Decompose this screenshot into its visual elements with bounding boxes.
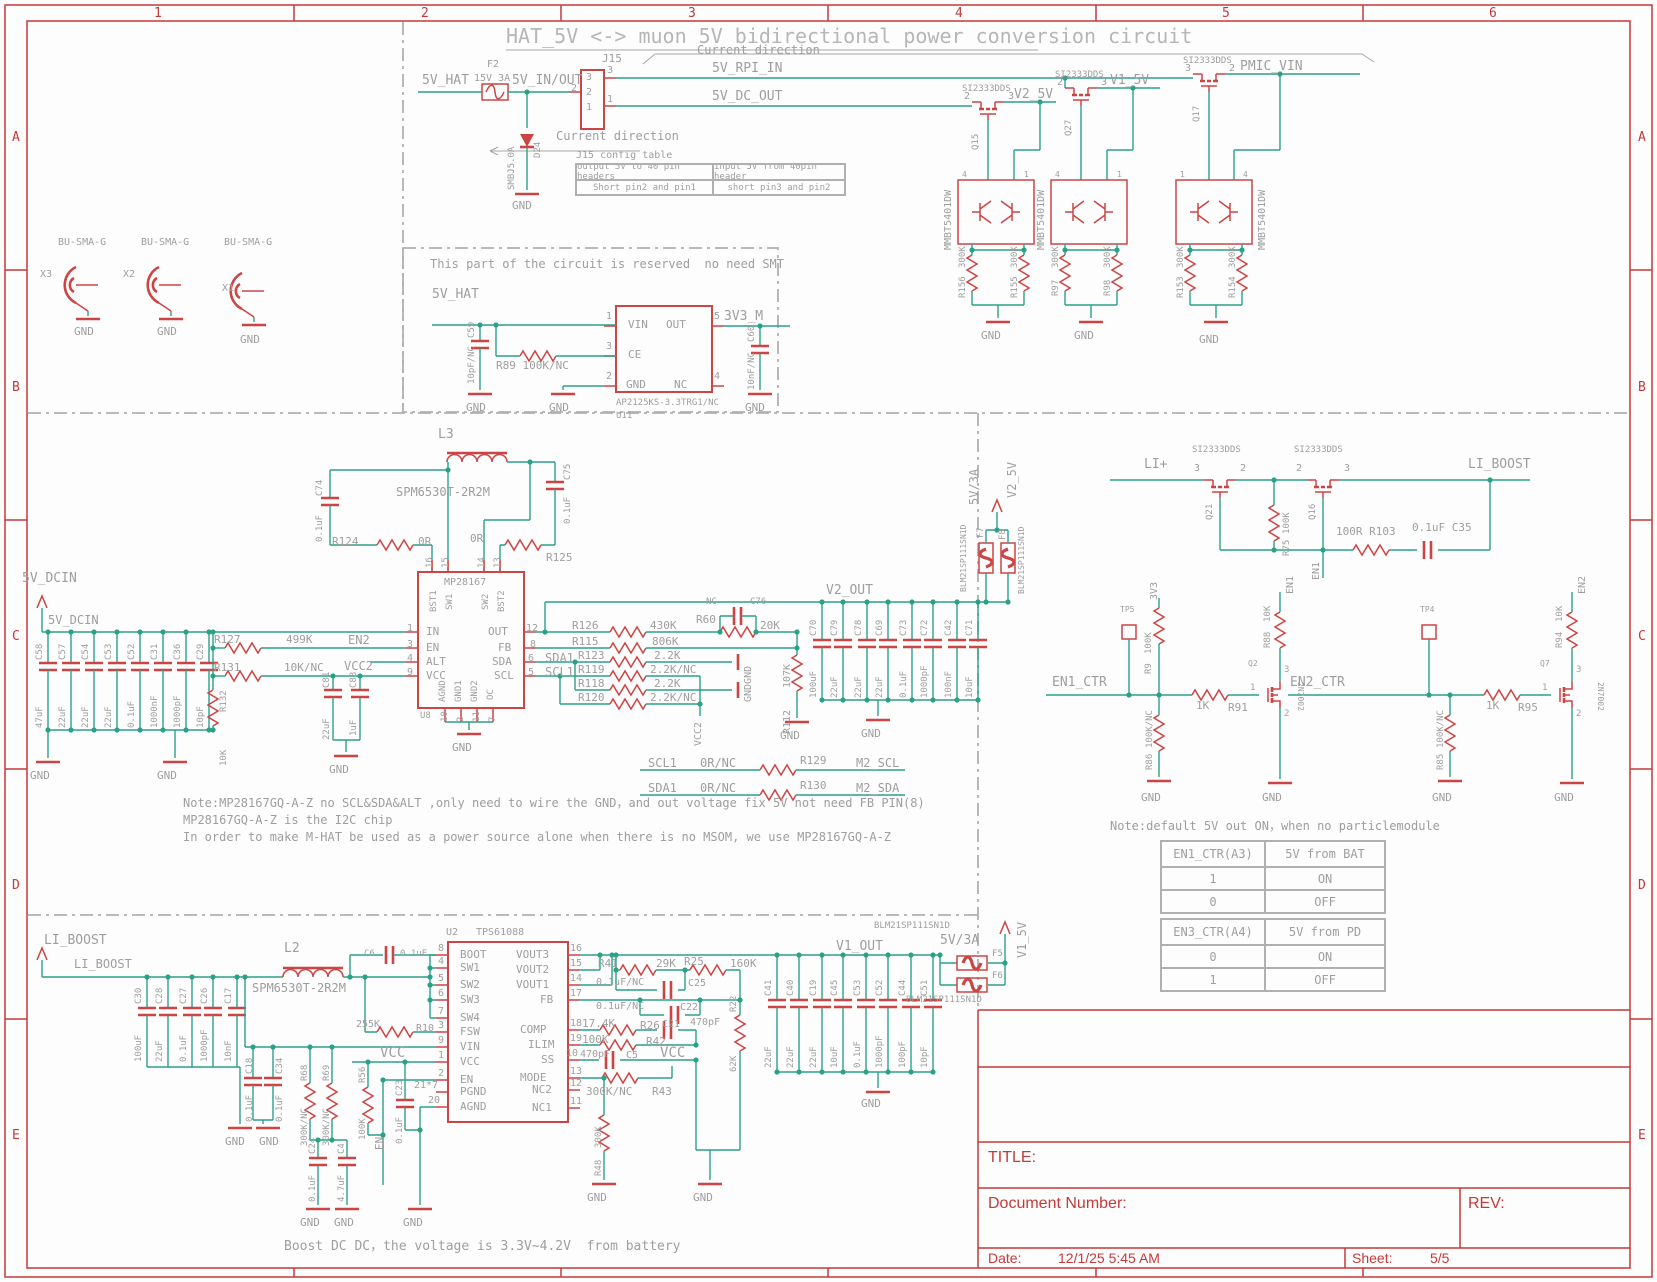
sch-label: 4 [962, 171, 967, 179]
sch-label: C40 [787, 980, 796, 996]
sch-label: C69 [876, 620, 885, 636]
sch-label: C24 [309, 1138, 318, 1154]
pnp [1094, 201, 1113, 223]
sch-label: 100pF [899, 1041, 908, 1068]
sch-label: 10uF [966, 676, 975, 698]
sch-label: 300K/NC [323, 1108, 332, 1146]
sch-label: 22uF [323, 718, 332, 740]
sch-label: R60 [696, 614, 716, 625]
wire [638, 1066, 672, 1078]
sch-label: EN2 [348, 634, 370, 646]
fuse [486, 85, 504, 99]
sch-label: F7 [977, 527, 986, 538]
sch-label: R129 [800, 755, 827, 766]
sch-label: 2 [1576, 710, 1581, 719]
pfet [980, 114, 996, 120]
sch-label: 0.1uF [128, 701, 137, 728]
sch-label: 1 [1180, 171, 1185, 179]
sch-label: R10 [416, 1024, 434, 1034]
sch-label: SI2333DDS [1192, 446, 1241, 455]
sch-label: VCC2 [344, 660, 373, 672]
sch-label: MMBT5401DW [1037, 190, 1047, 250]
wire [445, 722, 493, 730]
sch-label: V1_OUT [836, 940, 883, 953]
sch-label: 0R [470, 533, 483, 544]
sch-label: MP28167 [444, 578, 486, 588]
sch-label: SDA [492, 656, 512, 667]
sch-label: GND [74, 326, 94, 337]
sch-label: R155 [1011, 276, 1020, 298]
sch-label: GND [587, 1192, 607, 1203]
resistor [620, 965, 656, 975]
sch-label: GND [1262, 792, 1282, 803]
table-cell: 5V from PD [1265, 919, 1385, 945]
sch-label: C52 [128, 644, 137, 660]
sch-label: C28 [156, 988, 165, 1004]
sch-label: BU-SMA-G [141, 238, 189, 248]
sch-label: SW3 [460, 994, 480, 1005]
sch-label: GND1 [455, 680, 464, 702]
sch-label: Q21 [1206, 504, 1215, 520]
sch-label: 2 [1296, 464, 1302, 474]
frame-row-A: A [12, 131, 20, 144]
sch-label: BLM21SP111SN1D [960, 525, 968, 592]
pnp [972, 201, 991, 223]
sch-label: SDA1 [545, 652, 574, 664]
sch-label: 4 [1055, 171, 1060, 179]
pfet [1315, 492, 1331, 498]
sch-label: VIN [628, 319, 648, 330]
j15-connector [581, 70, 604, 129]
sch-label: 1 [586, 103, 592, 113]
sch-label: R68 [301, 1065, 310, 1081]
titleblock-sheet-value: 5/5 [1430, 1251, 1449, 1265]
sch-label: 3 [1185, 64, 1191, 74]
sch-label: C30 [135, 988, 144, 1004]
sch-label: M2_SCL [856, 757, 899, 769]
sch-label: 300K [1229, 246, 1238, 268]
sch-label: GND [240, 334, 260, 345]
sch-label: NC2 [532, 1084, 552, 1095]
table-cell: EN3_CTR(A4) [1161, 919, 1265, 945]
en3-ctr-table: EN3_CTR(A4)5V from PD0ON1OFF [1160, 918, 1386, 992]
resistor [602, 1073, 638, 1083]
sch-label: SDA1 [648, 782, 677, 794]
sch-label: C25 [688, 979, 706, 989]
junction-dot [242, 974, 247, 979]
wire [563, 386, 604, 390]
sch-label: SMBJ5.0A [508, 147, 517, 190]
sch-label: 4 [438, 957, 444, 967]
sch-label: 255K [356, 1020, 380, 1030]
sch-label: 0R/NC [700, 782, 736, 794]
sch-label: 2 [457, 717, 466, 722]
wire [696, 1060, 710, 1180]
table-cell: ON [1265, 945, 1385, 968]
sch-label: V2_OUT [826, 584, 873, 597]
sch-label: 1K [1196, 700, 1209, 711]
table-cell: input 5V from 40pin header [713, 164, 845, 180]
sch-label: GND [403, 1217, 423, 1228]
sch-label: 100K [1145, 632, 1154, 654]
sch-label: R98 [1104, 280, 1113, 296]
sch-label: 5 [714, 312, 720, 322]
sch-label: SCL1 [648, 757, 677, 769]
sch-label: 300K/NC [586, 1086, 632, 1097]
sch-label: C52 [876, 980, 885, 996]
sch-label: 22uF [105, 706, 114, 728]
sch-label: 0.1uF [246, 1095, 255, 1122]
sch-label: OC [487, 689, 496, 700]
frame-line [27, 21, 1630, 1268]
sch-label: R41 [598, 958, 618, 969]
sch-label: 100K [582, 1034, 609, 1045]
junction-dot [717, 629, 722, 634]
sch-label: 100uF [135, 1035, 144, 1062]
sch-label: 1 [607, 95, 613, 105]
sch-label: SW2 [460, 979, 480, 990]
junction-dot [1114, 247, 1119, 252]
sch-label: BST1 [430, 590, 439, 612]
sch-label: NC [674, 379, 687, 390]
wire [420, 1107, 436, 1205]
sch-label: C75 [564, 464, 573, 480]
sch-label: VCC2 [694, 722, 704, 746]
inductor [447, 455, 507, 462]
sch-label: 2 [1229, 64, 1235, 74]
sch-label: 3V3 [1150, 582, 1160, 600]
sch-label: 470pF [690, 1018, 720, 1028]
table-cell: 0 [1161, 945, 1265, 968]
sch-label: 62K [730, 1056, 739, 1072]
sch-label: 10uF [831, 1046, 840, 1068]
table-cell: 1 [1161, 968, 1265, 991]
sch-label: NC [706, 598, 717, 607]
power-arrow [1000, 922, 1010, 934]
frame-col-5: 5 [1222, 7, 1230, 20]
power-arrow [992, 500, 1002, 512]
sch-label: 3 [407, 640, 413, 650]
frame-row-E: E [1638, 1129, 1646, 1142]
sch-label: Note:MP28167GQ-A-Z no SCL&SDA&ALT ,only … [183, 797, 925, 809]
wire [368, 1123, 383, 1135]
sch-label: 17.4K [582, 1018, 615, 1029]
sch-label: R130 [800, 780, 827, 791]
sch-label: Q15 [972, 134, 981, 150]
sch-label: 5V_DCIN [22, 572, 77, 585]
sch-label: Q16 [1309, 504, 1318, 520]
sch-label: 22uF [876, 676, 885, 698]
sch-label: BU-SMA-G [224, 238, 272, 248]
sch-label: 29K [656, 958, 676, 969]
sma-connector [70, 278, 74, 292]
frame-row-D: D [12, 879, 20, 892]
sch-label: 0.1uF C35 [1412, 522, 1472, 533]
resistor [1353, 545, 1389, 555]
sch-label: VCC [460, 1056, 480, 1067]
sch-label: 13 [570, 1067, 582, 1077]
sch-label: Q2 [1248, 660, 1258, 668]
sch-label: 2 [1240, 464, 1246, 474]
pnp [1219, 201, 1238, 223]
sma-connector [242, 291, 264, 317]
sch-label: BOOT [460, 949, 487, 960]
sch-label: 1000pF [921, 665, 930, 698]
sch-label: 1uF [350, 720, 359, 736]
sch-label: 9 [438, 1036, 444, 1046]
junction-dot [1002, 960, 1007, 965]
sma-connector [159, 285, 181, 311]
sch-label: M2_SDA [856, 782, 899, 794]
sch-label: 4 [1243, 171, 1248, 179]
wire [678, 970, 685, 990]
sch-label: 5V_DC_OUT [712, 90, 782, 103]
sch-label: GND [861, 728, 881, 739]
j15-config-table: output 5V to 40 pin headersinput 5V from… [575, 163, 846, 196]
sch-label: 0.1uF [316, 515, 325, 542]
resistor [720, 627, 756, 637]
sch-label: GND [452, 742, 472, 753]
sch-label: 22uF [156, 1040, 165, 1062]
wire [580, 955, 600, 970]
sch-label: R126 [572, 620, 599, 631]
sch-label: 8 [530, 640, 536, 650]
sch-label: R97 [1052, 280, 1061, 296]
sch-label: 100K/NC [1437, 710, 1446, 748]
sch-label: 10pF [921, 1046, 930, 1068]
sch-label: 20K [760, 620, 780, 631]
sch-label: C31 [151, 644, 160, 660]
sch-label: 15 [570, 959, 582, 969]
sch-label: 107K [783, 664, 793, 688]
sch-label: 2 [964, 92, 970, 102]
test-point [1122, 625, 1136, 639]
sch-label: L2 [284, 942, 300, 955]
sch-label: BLM21SP111SN1D [874, 922, 950, 931]
sch-label: EN2_CTR [1290, 676, 1345, 689]
junction-dot [542, 629, 547, 634]
sch-label: 1 [438, 1051, 444, 1061]
sch-label: R85 [1437, 754, 1446, 770]
sch-label: 1 [1542, 684, 1547, 693]
pfet [1193, 74, 1225, 80]
sch-label: 10 [441, 711, 450, 722]
sch-label: R125 [546, 552, 573, 563]
pfet [1307, 480, 1339, 486]
sch-label: C71 [966, 620, 975, 636]
sch-label: 5V_HAT [432, 288, 479, 301]
sch-label: 1000pF [876, 1035, 885, 1068]
sch-label: GND [334, 1217, 354, 1228]
sch-label: 10K [1556, 606, 1565, 622]
table-cell: OFF [1265, 890, 1385, 913]
sch-label: 7 [438, 1007, 444, 1017]
sch-label: MP28167GQ-A-Z is the I2C chip [183, 814, 393, 826]
junction-dot [969, 247, 974, 252]
junction-dot [697, 701, 702, 706]
sch-label: C72 [921, 620, 930, 636]
sch-label: C60 [748, 326, 757, 342]
sch-label: R127 [214, 634, 241, 645]
table-cell: output 5V to 40 pin headers [576, 164, 713, 180]
sch-label: C19 [810, 980, 819, 996]
sch-label: SW1 [446, 594, 455, 610]
sch-label: 3 [586, 73, 592, 83]
sch-label: C4 [338, 1143, 347, 1154]
sch-label: 100R R103 [1336, 526, 1396, 537]
resistor [610, 699, 646, 709]
sch-label: F2 [487, 60, 499, 70]
sch-label: TP4 [1420, 606, 1434, 614]
sch-label: AGND [439, 680, 448, 702]
sch-label: 0R/NC [700, 757, 736, 769]
sch-label: 11 [473, 711, 482, 722]
pnp [1001, 201, 1020, 223]
sch-label: PGND [460, 1086, 487, 1097]
sch-label: GND [780, 730, 800, 741]
junction-dot [1239, 247, 1244, 252]
sch-label: 0R [418, 536, 431, 547]
sch-label: EN [460, 1074, 473, 1085]
sch-label: 300K [1052, 246, 1061, 268]
sch-label: 10K/NC [284, 662, 324, 673]
sch-label: TP5 [1120, 606, 1134, 614]
resistor [1185, 255, 1195, 291]
sch-label: OUT [488, 626, 508, 637]
junction-dot [445, 467, 450, 472]
sch-label: Current direction [697, 44, 820, 56]
sch-label: 2 [586, 88, 592, 98]
sch-label: 22uF [765, 1046, 774, 1068]
sch-label: LI+ [1144, 458, 1167, 471]
sch-label: 0.1uF [400, 950, 427, 959]
junction-dot [1187, 247, 1192, 252]
sch-label: VCC [660, 1046, 685, 1060]
sch-label: C42 [945, 620, 954, 636]
sch-label: R75 [1283, 540, 1292, 556]
sch-label: 4 [714, 372, 720, 382]
junction-dot [210, 727, 215, 732]
sch-label: 3V3_M [724, 310, 763, 323]
sch-label: 100K/NC [1146, 710, 1155, 748]
sch-label: R95 [1518, 702, 1538, 713]
table-cell: short pin3 and pin2 [713, 180, 845, 195]
wire [496, 325, 520, 356]
sch-label: J15 config table [576, 151, 672, 161]
frame-col-2: 2 [421, 7, 429, 20]
sch-label: MMBT5401DW [1258, 190, 1268, 250]
sch-label: 22uF [810, 1046, 819, 1068]
sch-label: GND [626, 379, 646, 390]
resistor [377, 540, 413, 550]
sch-label: J15 [602, 53, 622, 64]
resistor [1112, 255, 1122, 291]
dual-pnp [1051, 180, 1127, 244]
wire [405, 1107, 420, 1130]
pin-stub [445, 708, 493, 722]
resistor [610, 657, 646, 667]
sch-label: 22uF [831, 676, 840, 698]
sch-label: VOUT3 [516, 949, 549, 960]
sch-label: 5V/3A [940, 934, 979, 947]
titleblock-title-label: TITLE: [988, 1150, 1036, 1166]
sch-label: 1000nF [151, 695, 160, 728]
sch-label: C57 [59, 644, 68, 660]
sch-label: 0.1uF/NC [596, 978, 644, 988]
sch-label: R120 [578, 692, 605, 703]
sch-label: 14 [478, 557, 487, 568]
titleblock-doc-label: Document Number: [988, 1196, 1127, 1212]
sch-label: F6 [992, 972, 1003, 981]
sch-label: 1 [1250, 684, 1255, 693]
sch-label: 0.1uF [396, 1117, 405, 1144]
sch-label: EN1 [1286, 576, 1296, 594]
sma-connector [76, 285, 98, 311]
sch-label: 100nF [945, 671, 954, 698]
sch-label: C29 [197, 644, 206, 660]
reserved-region [403, 248, 778, 412]
sch-label: 2.2K [654, 678, 681, 689]
sch-label: Q7 [1540, 660, 1550, 668]
sch-label: R9 [1145, 663, 1154, 674]
sch-label: GND [259, 1136, 279, 1147]
sch-label: C59 [468, 322, 477, 338]
sch-label: C58 [36, 644, 45, 660]
sch-label: R91 [1228, 702, 1248, 713]
sch-label: 5 [528, 668, 534, 678]
sch-label: R89 100K/NC [496, 360, 569, 371]
resistor [1567, 612, 1577, 648]
resistor [1275, 612, 1285, 648]
sch-label: 100K [1283, 512, 1292, 534]
sch-label: R119 [578, 664, 605, 675]
resistor [967, 255, 977, 291]
resistor [1060, 255, 1070, 291]
sch-label: 18 [570, 1019, 582, 1029]
en1-ctr-table: EN1_CTR(A3)5V from BAT1ON0OFF [1160, 840, 1386, 914]
sch-label: VCC [380, 1046, 405, 1060]
sch-label: ILIM [528, 1039, 555, 1050]
sch-label: 6 [528, 654, 534, 664]
frame-row-C: C [1638, 630, 1646, 643]
sch-label: 1 [407, 624, 413, 634]
wire [1107, 88, 1133, 180]
sch-label: C53 [105, 644, 114, 660]
sch-label: 20 [428, 1096, 440, 1106]
sch-label: SCL1 [545, 666, 574, 678]
sch-label: C81 [323, 672, 332, 688]
sch-label: V2_5V [1014, 88, 1053, 101]
sch-label: 470pF [580, 1050, 610, 1060]
resistor [505, 540, 541, 550]
sch-label: 0.1uF [900, 671, 909, 698]
sch-label: C54 [82, 644, 91, 660]
sch-label: 16 [570, 944, 582, 954]
sch-label: C45 [831, 980, 840, 996]
sch-label: 5V_DCIN [48, 614, 99, 626]
sch-label: C51 [921, 980, 930, 996]
sch-label: 4 [407, 654, 413, 664]
sch-label: FSW [460, 1026, 480, 1037]
sch-label: C78 [855, 620, 864, 636]
sch-label: ALT [426, 656, 446, 667]
test-point [1422, 625, 1436, 639]
sch-label: 22uF [59, 706, 68, 728]
sch-label: NC1 [532, 1102, 552, 1113]
sch-label: SW2 [482, 594, 491, 610]
sch-label: SS [541, 1054, 554, 1065]
sch-label: GND [745, 402, 765, 413]
